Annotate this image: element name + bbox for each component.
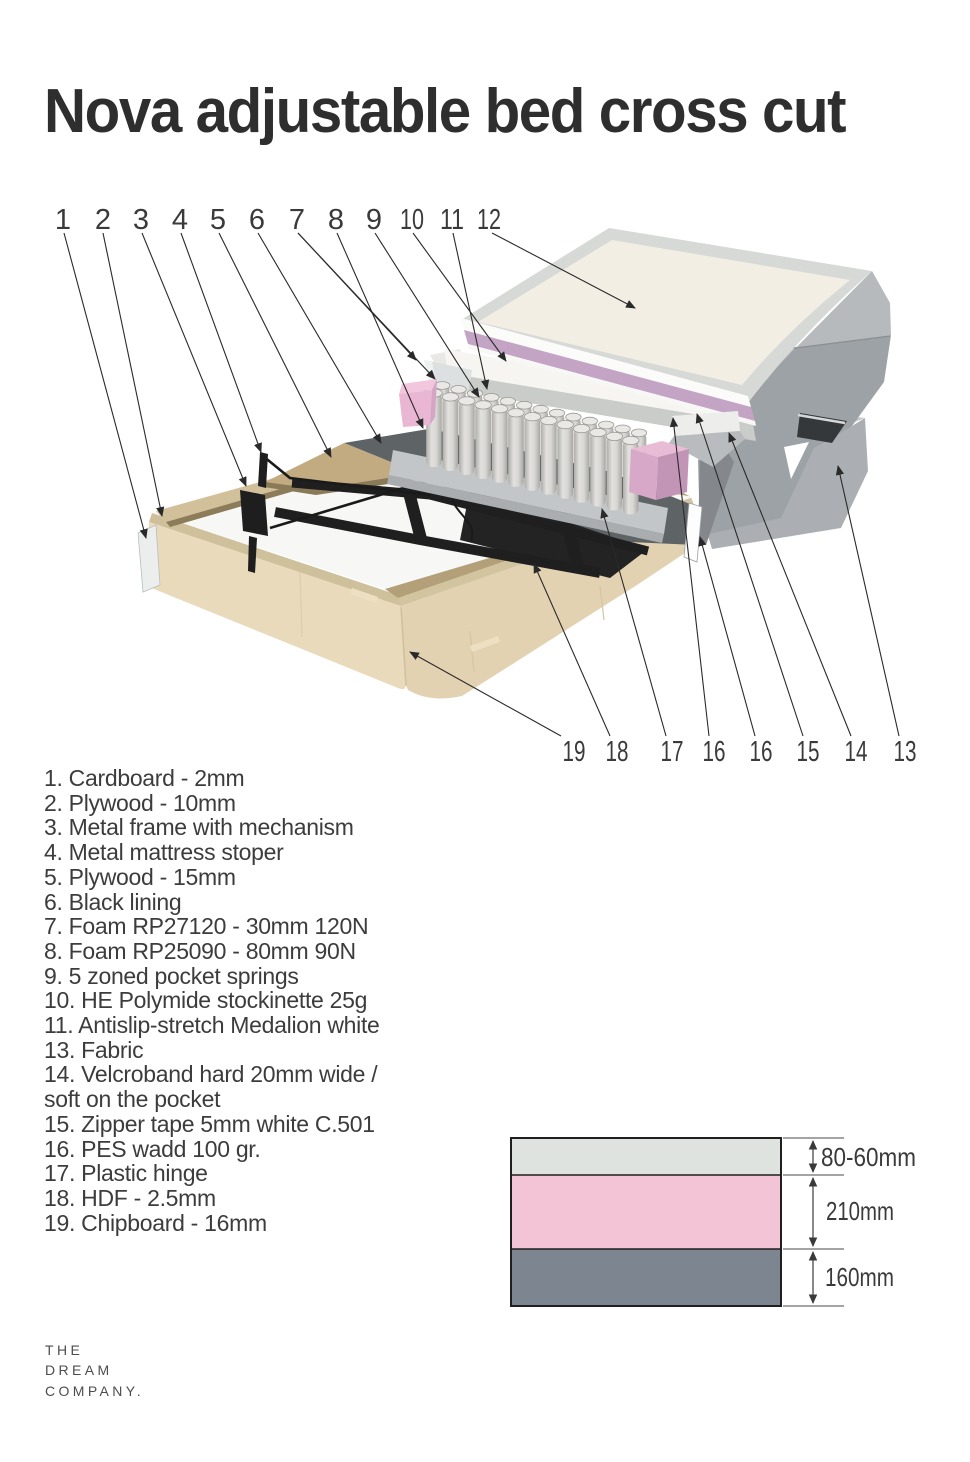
svg-text:2: 2 xyxy=(95,204,111,236)
svg-text:160mm: 160mm xyxy=(825,1262,894,1292)
svg-text:16: 16 xyxy=(703,736,726,768)
svg-text:14: 14 xyxy=(845,736,868,768)
svg-text:3: 3 xyxy=(133,204,149,236)
svg-text:16: 16 xyxy=(750,736,773,768)
svg-text:4: 4 xyxy=(172,204,188,236)
svg-text:7: 7 xyxy=(289,204,305,236)
svg-text:15: 15 xyxy=(797,736,820,768)
svg-text:5: 5 xyxy=(210,204,226,236)
svg-text:12: 12 xyxy=(477,204,501,236)
svg-text:18: 18 xyxy=(606,736,629,768)
svg-text:11: 11 xyxy=(440,204,464,236)
svg-text:17: 17 xyxy=(661,736,684,768)
svg-text:9: 9 xyxy=(366,204,382,236)
svg-text:210mm: 210mm xyxy=(826,1196,894,1226)
svg-text:13: 13 xyxy=(894,736,917,768)
svg-text:10: 10 xyxy=(400,204,424,236)
svg-text:8: 8 xyxy=(328,204,344,236)
svg-text:19: 19 xyxy=(563,736,586,768)
svg-text:80-60mm: 80-60mm xyxy=(821,1142,916,1172)
svg-text:6: 6 xyxy=(249,204,265,236)
svg-text:1: 1 xyxy=(55,204,71,236)
